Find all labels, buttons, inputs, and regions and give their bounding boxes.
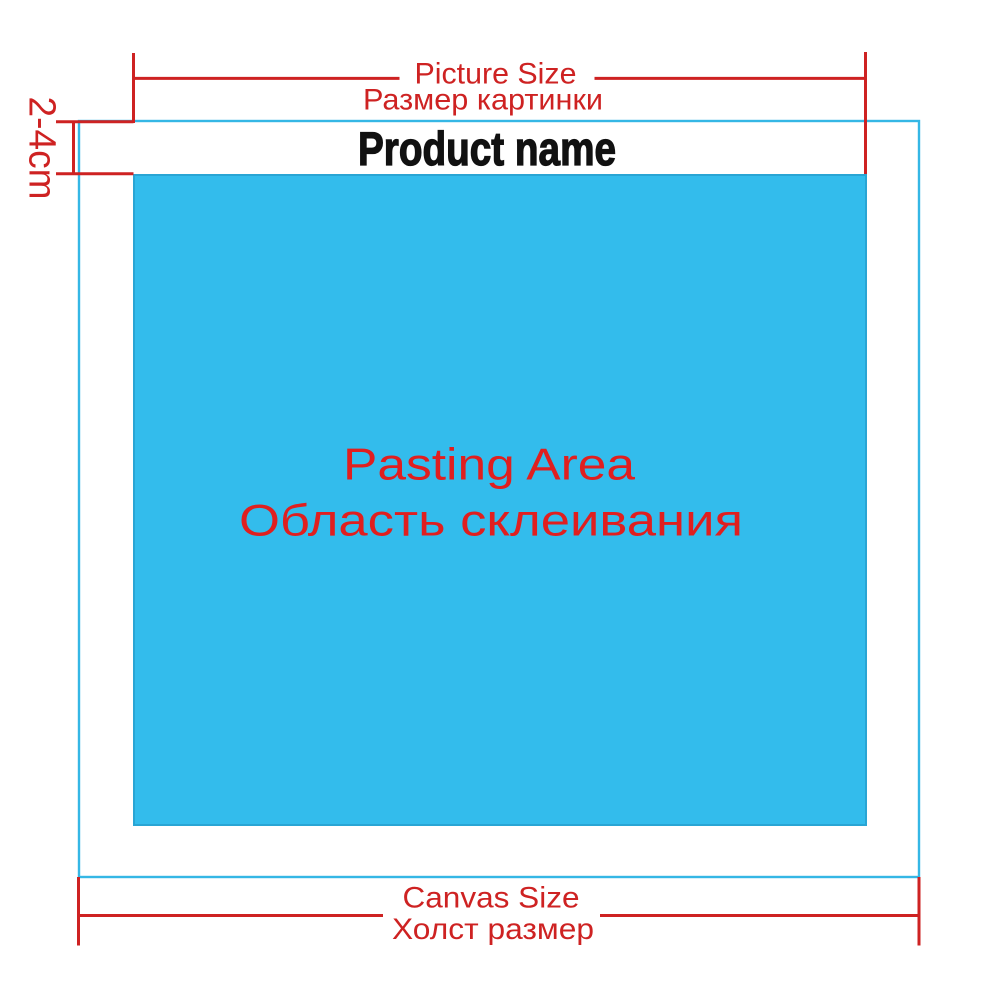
- svg-text:Холст размер: Холст размер: [392, 913, 594, 946]
- svg-text:2-4cm: 2-4cm: [21, 97, 63, 200]
- svg-text:Pasting Area: Pasting Area: [343, 441, 635, 490]
- svg-text:Product name: Product name: [358, 122, 616, 175]
- svg-text:Область склеивания: Область склеивания: [239, 497, 743, 546]
- svg-text:Canvas Size: Canvas Size: [403, 882, 580, 915]
- svg-text:Размер картинки: Размер картинки: [363, 84, 603, 117]
